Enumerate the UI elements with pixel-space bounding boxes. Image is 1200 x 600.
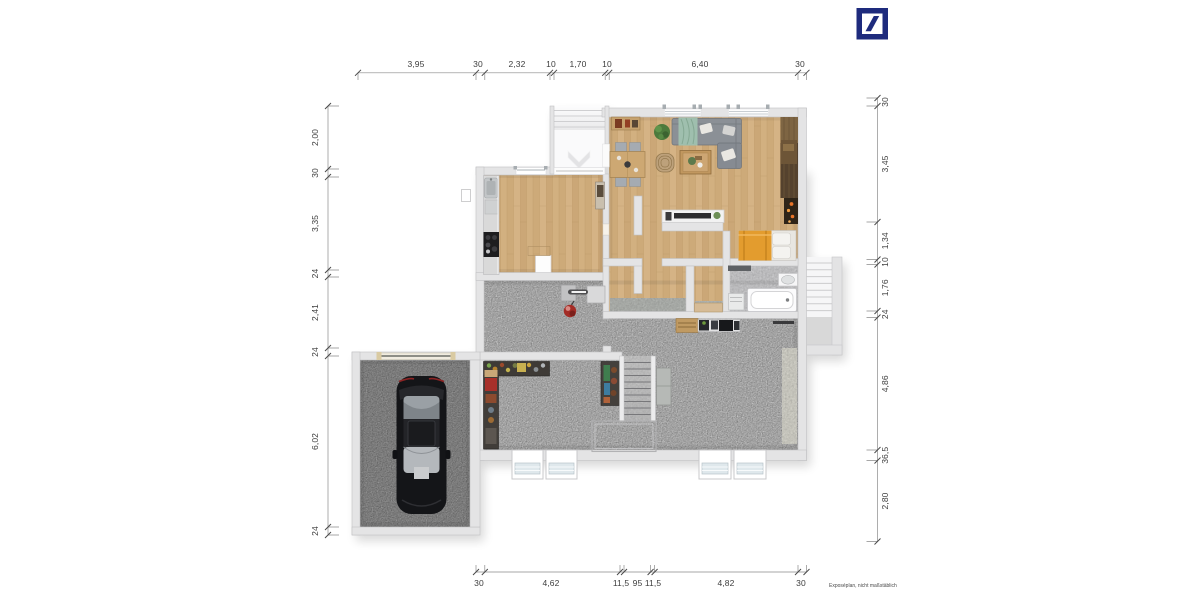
svg-text:3,95: 3,95 <box>408 59 425 69</box>
svg-text:24: 24 <box>310 269 320 279</box>
svg-text:6,02: 6,02 <box>310 433 320 450</box>
svg-text:1,76: 1,76 <box>880 279 890 296</box>
svg-text:Exposéplan, nicht maßstäblich: Exposéplan, nicht maßstäblich <box>829 583 897 589</box>
svg-text:30: 30 <box>310 168 320 178</box>
svg-text:36,5: 36,5 <box>880 447 890 464</box>
svg-text:11,5: 11,5 <box>645 578 661 588</box>
svg-text:11,5: 11,5 <box>613 578 629 588</box>
svg-text:24: 24 <box>310 347 320 357</box>
svg-text:4,62: 4,62 <box>543 578 560 588</box>
svg-text:4,82: 4,82 <box>718 578 735 588</box>
svg-text:1,34: 1,34 <box>880 232 890 249</box>
svg-text:24: 24 <box>880 309 890 319</box>
svg-text:30: 30 <box>473 59 483 69</box>
svg-text:2,80: 2,80 <box>880 492 890 509</box>
svg-text:3,45: 3,45 <box>880 155 890 172</box>
svg-text:3,35: 3,35 <box>310 215 320 232</box>
svg-text:2,41: 2,41 <box>310 304 320 321</box>
svg-text:10: 10 <box>602 59 612 69</box>
svg-text:2,32: 2,32 <box>509 59 526 69</box>
svg-text:6,40: 6,40 <box>692 59 709 69</box>
svg-text:10: 10 <box>880 257 890 267</box>
svg-text:10: 10 <box>546 59 556 69</box>
svg-text:2,00: 2,00 <box>310 129 320 146</box>
svg-text:1,70: 1,70 <box>570 59 587 69</box>
svg-text:30: 30 <box>795 59 805 69</box>
svg-text:30: 30 <box>796 578 806 588</box>
svg-text:4,86: 4,86 <box>880 375 890 392</box>
svg-text:95: 95 <box>633 578 643 588</box>
svg-text:30: 30 <box>474 578 484 588</box>
svg-text:24: 24 <box>310 526 320 536</box>
svg-text:30: 30 <box>880 97 890 107</box>
